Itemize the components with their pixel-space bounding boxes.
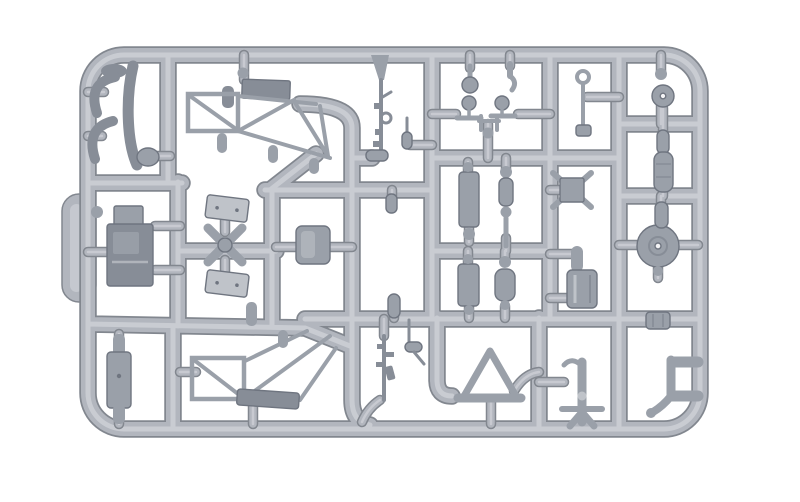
photo-model-sprue: Light grey injection-moulded plastic mod… <box>0 0 800 502</box>
sprue-illustration: Light grey injection-moulded plastic mod… <box>0 0 800 502</box>
part-fuel-tank <box>296 226 330 264</box>
part-coupler-sleeve <box>646 312 670 329</box>
part-eye-ball-fitting <box>652 85 674 107</box>
